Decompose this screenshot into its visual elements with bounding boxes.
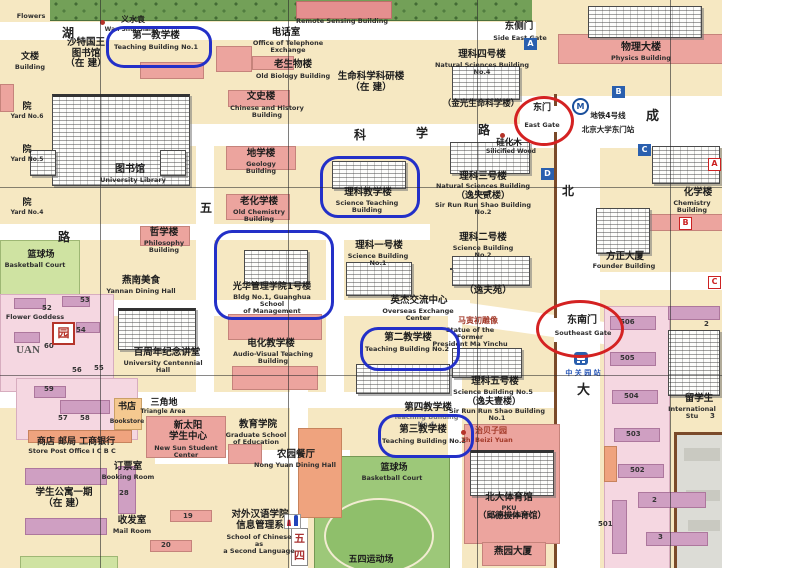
guanghua-highlight-box bbox=[214, 230, 334, 320]
science-teaching-highlight-box bbox=[320, 156, 420, 218]
centennial-label-en: University Centennial Hall bbox=[120, 360, 206, 374]
wenshi-label-en: Chinese and History Building bbox=[220, 105, 314, 119]
building bbox=[0, 84, 14, 112]
teaching3-highlight-box bbox=[378, 414, 474, 458]
library-wing bbox=[160, 150, 186, 176]
wanshui-dot bbox=[100, 20, 105, 25]
sci3-shao-label-en: Sir Run Run Shao Building No.2 bbox=[430, 202, 536, 216]
telephone-label-en: Office of Telephone Exchange bbox=[240, 40, 336, 54]
booking-room-label-en: Booking Room bbox=[98, 474, 158, 481]
yannan-dining-label: 燕南美食 bbox=[114, 276, 168, 287]
building-number: 2 bbox=[652, 496, 657, 504]
basketball1-label-en: Basketball Court bbox=[2, 262, 68, 269]
east-cross-road bbox=[600, 272, 722, 290]
mail-room-label: 收发室 bbox=[108, 516, 156, 527]
metro-line-label: 地铁4号线 bbox=[582, 112, 634, 120]
physics-label-en: Physics Building bbox=[604, 55, 678, 62]
new-sun-label: 新太阳 学生中心 bbox=[158, 421, 218, 442]
telephone-label: 电话室 bbox=[256, 28, 316, 39]
sci2-label: 理科二号楼 bbox=[450, 233, 516, 244]
nongyuan-dining-building bbox=[298, 428, 342, 518]
building-number: 3 bbox=[658, 533, 663, 541]
road-char-cheng: 成 bbox=[646, 105, 659, 124]
building-number: 28 bbox=[119, 489, 129, 497]
education-school-label-en: Graduate School of Education bbox=[222, 432, 290, 446]
sci5-sketch bbox=[452, 348, 522, 378]
remote-sensing-label: Remote Sensing Building bbox=[292, 18, 392, 25]
geology-label-en: Geology Building bbox=[230, 161, 292, 175]
road-char-da: 大 bbox=[577, 379, 590, 398]
new-sun-label-en: New Sun Student Center bbox=[144, 445, 228, 459]
building-3 bbox=[646, 532, 708, 546]
store-post-icbc-label-en: Store Post Office I C B C bbox=[16, 448, 128, 455]
road-char-lu2: 路 bbox=[58, 228, 70, 245]
founder-label-en: Founder Building bbox=[592, 263, 656, 270]
silicified-dot bbox=[500, 133, 505, 138]
flower-goddess-label: Flower Goddess bbox=[4, 314, 66, 321]
basketball2-label-en: Basketball Court bbox=[358, 475, 426, 482]
building-20 bbox=[150, 540, 192, 552]
wanshui-label: 义水袁 bbox=[106, 16, 160, 25]
centennial-sketch bbox=[118, 308, 196, 350]
sci5-label-en: Science Building No.5 bbox=[450, 389, 536, 396]
yard-number: 54 bbox=[76, 326, 86, 334]
building-number: 20 bbox=[161, 541, 171, 549]
sports-field-label: 五四运动场 bbox=[334, 555, 408, 565]
centennial-label: 百周年纪念讲堂 bbox=[126, 348, 208, 359]
philosophy-label: 哲学楼 bbox=[142, 228, 186, 239]
building bbox=[60, 400, 110, 414]
teaching2-highlight-box bbox=[360, 327, 460, 371]
audio-visual-building-south bbox=[232, 366, 318, 390]
route-marker-C: C bbox=[708, 276, 721, 289]
chemistry-label-en: Chemistry Building bbox=[662, 200, 722, 214]
gray-building bbox=[688, 520, 720, 531]
wenshi-label: 文史楼 bbox=[236, 92, 286, 103]
building-number: 505 bbox=[620, 354, 635, 362]
nongyuan-label-en: Nong Yuan Dining Hall bbox=[254, 462, 336, 469]
silicified-wood-label-en: Silicified Wood bbox=[482, 149, 540, 156]
building-number: 502 bbox=[630, 466, 645, 474]
yard-number: 58 bbox=[80, 414, 90, 422]
route-marker-B: B bbox=[679, 217, 692, 230]
metro-station-label: 北京大学东门站 bbox=[572, 126, 644, 134]
building bbox=[604, 446, 617, 482]
yard5-label: 院 bbox=[18, 145, 36, 155]
library-label-en: University Library bbox=[98, 177, 168, 184]
yuan-garden-symbol: 园 bbox=[52, 322, 75, 345]
sci1-label-en: Science Building No.1 bbox=[340, 253, 416, 267]
bookstore-label: 书店 bbox=[115, 402, 139, 412]
building-number: 504 bbox=[624, 392, 639, 400]
student-apartment-label: 学生公寓一期 （在 建） bbox=[20, 488, 108, 509]
apartment-building bbox=[25, 468, 107, 485]
founder-sketch bbox=[596, 208, 650, 254]
waiwen-label: 文楼 bbox=[12, 52, 48, 62]
geology-label: 地学楼 bbox=[238, 149, 284, 160]
yard6-label: 院 bbox=[18, 102, 36, 112]
store-post-icbc-label: 商店 邮局 工商银行 bbox=[22, 437, 130, 447]
yard5-label-en: Yard No.5 bbox=[4, 157, 50, 164]
side-east-gate-label: 东侧门 bbox=[488, 22, 550, 33]
stop-marker-B: B bbox=[612, 86, 625, 98]
sci4-label: 理科四号楼 bbox=[446, 50, 518, 61]
audio-visual-label: 电化教学楼 bbox=[240, 339, 302, 350]
stop-marker-C: C bbox=[638, 144, 651, 156]
building-number: 503 bbox=[626, 430, 641, 438]
apartment-building bbox=[25, 518, 107, 535]
stop-marker-D: D bbox=[541, 168, 554, 180]
yard4-label-en: Yard No.4 bbox=[4, 210, 50, 217]
teaching1-highlight-oval bbox=[106, 26, 212, 68]
old-chemistry-label-en: Old Chemistry Building bbox=[224, 209, 294, 223]
stop-marker-A: A bbox=[524, 38, 537, 50]
building-2 bbox=[638, 492, 706, 508]
route-marker-A: A bbox=[708, 158, 721, 171]
yard-number: 52 bbox=[42, 304, 52, 312]
gym-alt-label: （邱德拔体育馆） bbox=[466, 512, 558, 522]
east-gate-highlight-circle bbox=[514, 96, 574, 146]
sci5-label: 理科五号楼 bbox=[462, 377, 528, 388]
physics-sketch bbox=[588, 6, 702, 38]
education-school-label: 教育学院 bbox=[230, 420, 286, 431]
yard-number: 56 bbox=[72, 366, 82, 374]
restroom-icon bbox=[284, 514, 301, 529]
triangle-area-label-en: Triangle Area bbox=[136, 409, 190, 416]
building-number: 501 bbox=[598, 520, 613, 528]
yifuyuan-label: （逸夫苑） bbox=[456, 286, 520, 297]
road-char-lu: 路 bbox=[478, 121, 490, 138]
intl-students-label: 留学生 bbox=[674, 394, 722, 405]
sci2-sketch bbox=[452, 256, 530, 286]
road-char-bei: 北 bbox=[562, 182, 574, 199]
sci4-label-en: Natural Sciences Building No.4 bbox=[428, 62, 536, 76]
basketball2-label: 篮球场 bbox=[370, 463, 418, 473]
bookstore-label-en: Bookstore bbox=[106, 419, 148, 426]
southeast-gate-highlight-circle bbox=[536, 300, 624, 358]
campus-map: 湖 科 学 路 路 五 北 大 成 五 四 Flowers 义水袁 Wan Sh… bbox=[0, 0, 722, 568]
road-char-ke: 科 bbox=[354, 126, 366, 143]
intl-students-bar bbox=[668, 306, 720, 320]
gray-building bbox=[684, 448, 720, 461]
intl-students-sketch bbox=[668, 330, 720, 396]
side-east-gate-label-en: Side East Gate bbox=[486, 35, 554, 42]
yard-number: 59 bbox=[44, 385, 54, 393]
sci5-shao-label: （逸夫壹楼） bbox=[456, 397, 532, 407]
chinese-language-label-en: School of Chinese as a Second Language bbox=[222, 534, 296, 555]
physics-label: 物理大楼 bbox=[610, 42, 672, 53]
road-char-xue: 学 bbox=[416, 124, 428, 141]
chemistry-label: 化学楼 bbox=[676, 188, 720, 199]
overseas-label: 英杰交流中心 bbox=[380, 296, 458, 307]
spacer bbox=[450, 268, 452, 270]
yard-number: 55 bbox=[94, 364, 104, 372]
yard6-label-en: Yard No.6 bbox=[4, 114, 50, 121]
gym-label: 北大体育馆 bbox=[474, 493, 544, 504]
metro-logo-icon: M bbox=[572, 98, 589, 115]
sci1-label: 理科一号楼 bbox=[346, 241, 412, 252]
zhongguanyuan-stop-label: 中 关 园 站 bbox=[558, 370, 608, 378]
life-science-label: 生命科学科研楼 （在 建） bbox=[322, 72, 420, 93]
yard4-label: 院 bbox=[18, 198, 36, 208]
building-number: 19 bbox=[183, 512, 193, 520]
yannan-dining-label-en: Yannan Dining Hall bbox=[106, 288, 176, 295]
nongyuan-label: 农园餐厅 bbox=[268, 450, 324, 461]
library-label: 图书馆 bbox=[108, 164, 152, 175]
yard-building bbox=[14, 332, 40, 343]
sci3-shao-label: （逸夫贰楼） bbox=[444, 191, 522, 201]
yard-number: 53 bbox=[80, 296, 90, 304]
triangle-area-label: 三角地 bbox=[140, 398, 188, 408]
yanyuan-label: 燕园大厦 bbox=[486, 547, 540, 558]
waiwen-label-en: Building bbox=[8, 64, 52, 71]
sci2-label-en: Science Building No.2 bbox=[444, 245, 522, 259]
building-number: 2 bbox=[704, 320, 709, 328]
flowers-label: Flowers bbox=[10, 13, 52, 20]
old-chemistry-label: 老化学楼 bbox=[234, 197, 284, 208]
building-number: 3 bbox=[710, 412, 715, 420]
basketball1-label: 篮球场 bbox=[18, 250, 64, 260]
south-green bbox=[20, 556, 118, 568]
road-char-wu: 五 bbox=[200, 199, 212, 216]
booking-room-label: 订票室 bbox=[104, 462, 152, 473]
mayinchu-label: 马寅初雕像 bbox=[448, 317, 508, 326]
mail-room-label-en: Mail Room bbox=[108, 528, 156, 535]
building-501 bbox=[612, 500, 627, 554]
audio-visual-label-en: Audio-Visual Teaching Building bbox=[224, 351, 322, 365]
old-biology-label: 老生物楼 bbox=[252, 60, 334, 71]
yard-number: 57 bbox=[58, 414, 68, 422]
philosophy-label-en: Philosophy Building bbox=[132, 240, 196, 254]
gym-sketch bbox=[470, 450, 554, 496]
